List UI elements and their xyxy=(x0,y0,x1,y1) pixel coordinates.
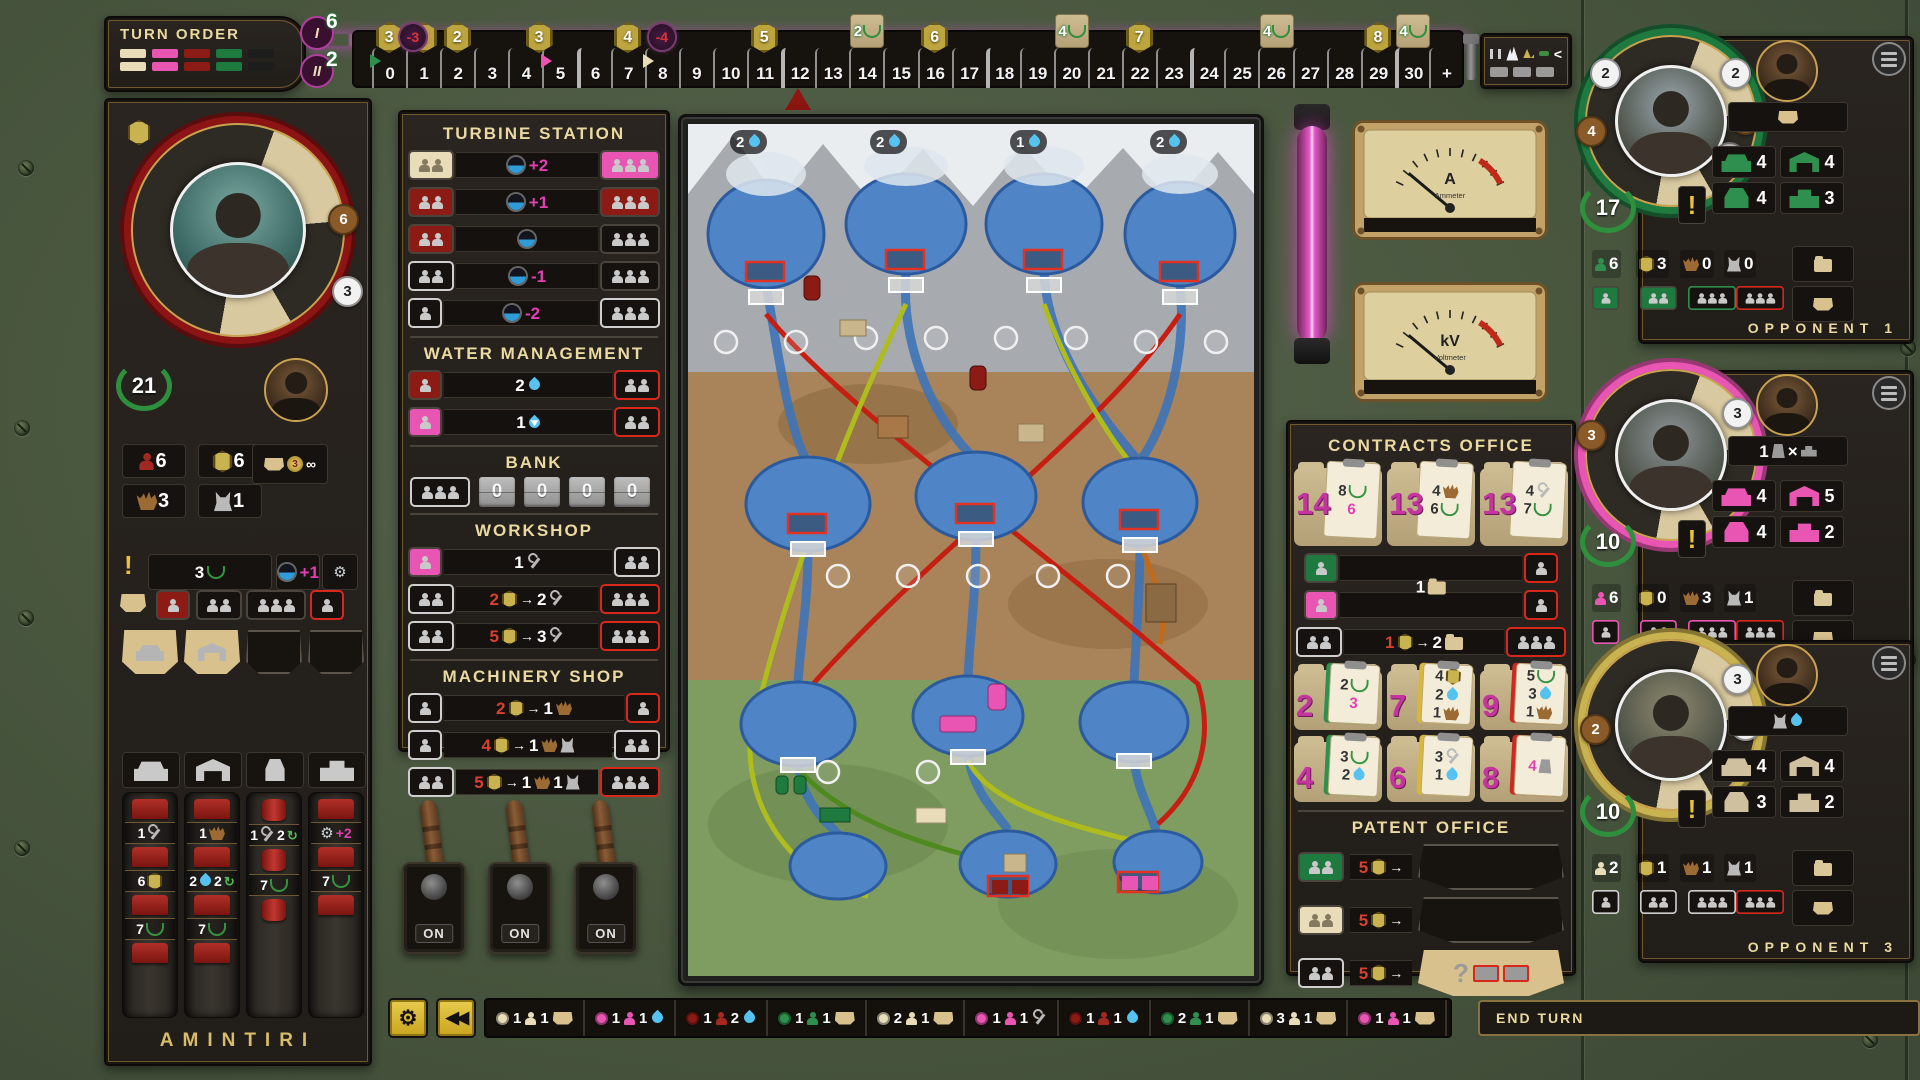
pick-slot[interactable] xyxy=(1304,553,1338,583)
laurel-icon xyxy=(1440,502,1459,516)
building-piece xyxy=(318,847,354,867)
track-cell-9[interactable]: 9 xyxy=(679,48,713,88)
meeple-icon xyxy=(1536,599,1547,612)
drop-icon xyxy=(1027,133,1043,149)
meeple-icon xyxy=(419,776,430,789)
track-cell-19[interactable]: 19 xyxy=(1020,48,1054,88)
switch-base: ON xyxy=(488,862,552,954)
value: 1 xyxy=(199,826,207,840)
turn-order-tokens xyxy=(120,49,304,71)
pick-slot[interactable] xyxy=(1524,590,1558,620)
building-count-conduit: 3 xyxy=(1712,786,1776,818)
action-slot[interactable] xyxy=(600,150,660,180)
patent-office-rows: 5→5→5→? xyxy=(1288,842,1574,998)
building-count-base: 4 xyxy=(1712,750,1776,782)
contract-card[interactable]: 9531 xyxy=(1480,662,1568,732)
player-construction-wheel[interactable]: 63 xyxy=(120,112,356,348)
meeple-cream-icon xyxy=(1595,862,1606,875)
track-cell-2[interactable]: 2 xyxy=(440,48,474,88)
value: 7 xyxy=(260,878,268,892)
action-slot[interactable] xyxy=(600,298,660,328)
bonus-value: 4 xyxy=(1058,23,1066,40)
bank-slot[interactable] xyxy=(410,477,470,507)
track-cell-30[interactable]: 30 xyxy=(1395,48,1429,88)
resource-value: 6 xyxy=(1609,254,1618,274)
track-cell-6[interactable]: 6 xyxy=(577,48,611,88)
mystery-building-icon xyxy=(1503,965,1529,982)
meeple-red-icon xyxy=(1098,1012,1109,1025)
opponent-worker-slot[interactable] xyxy=(1592,890,1619,914)
value: 1 xyxy=(1526,704,1535,719)
value: -1 xyxy=(531,268,546,285)
bonus-value: 2 xyxy=(854,23,862,40)
building-count-value: 4 xyxy=(1756,188,1766,209)
game-board: 0123456789101112131415161718192021222324… xyxy=(0,0,1920,1080)
meeple-icon xyxy=(1601,293,1610,303)
action-slot[interactable] xyxy=(600,621,660,651)
build-cost: 12↻ xyxy=(249,824,299,846)
track-cell-17[interactable]: 17 xyxy=(952,48,986,88)
track-cell-27[interactable]: 27 xyxy=(1293,48,1327,88)
track-cell-22[interactable]: 22 xyxy=(1122,48,1156,88)
settings-button[interactable]: ⚙ xyxy=(388,998,428,1038)
building-piece xyxy=(262,899,286,921)
contracts-stack-button[interactable] xyxy=(1792,246,1854,282)
player-worker-slot[interactable] xyxy=(156,590,190,620)
track-cell-1[interactable]: 1 xyxy=(406,48,440,88)
wrench-icon xyxy=(1536,483,1552,500)
powerhouse-icon xyxy=(320,759,354,781)
pick-slot[interactable] xyxy=(1304,590,1338,620)
meeple-icon xyxy=(625,196,636,209)
building-piece xyxy=(194,799,230,819)
laurel-icon xyxy=(1350,750,1369,764)
pick-slot[interactable] xyxy=(1524,553,1558,583)
contract-card[interactable]: 7421 xyxy=(1387,662,1475,732)
action-slot[interactable] xyxy=(408,547,442,577)
opponent-worker-slot[interactable] xyxy=(1592,286,1619,310)
meeple-icon xyxy=(220,599,231,612)
round-value: 2 xyxy=(326,48,338,72)
action-slot[interactable] xyxy=(408,370,442,400)
build-column-conduit[interactable]: 12↻7 xyxy=(246,792,302,1018)
meeple-icon xyxy=(1536,562,1547,575)
log-entry[interactable]: 11 xyxy=(1059,1000,1151,1036)
wheel-segment-elevation[interactable] xyxy=(184,630,240,674)
track-cell-7[interactable]: 7 xyxy=(611,48,645,88)
turn-order-title: TURN ORDER xyxy=(120,26,304,43)
contract-card[interactable]: 1346 xyxy=(1387,460,1475,548)
value: -2 xyxy=(525,305,540,322)
power-switch[interactable]: ON xyxy=(488,862,548,954)
player-dot-icon xyxy=(877,1012,890,1025)
meeple-icon xyxy=(1307,636,1318,649)
track-cell-18[interactable]: 18 xyxy=(986,48,1020,88)
player-panel: 63 21 6631 3 ∞ ! 3 +1⚙ 167122↻712↻7⚙+27 … xyxy=(104,98,372,1066)
contract-card[interactable]: 1486 xyxy=(1294,460,1382,548)
powerhouse-icon xyxy=(1789,522,1819,542)
action-slot[interactable] xyxy=(1506,627,1566,657)
value: 1 xyxy=(553,774,562,791)
building-count-value: 2 xyxy=(1824,792,1834,813)
meeple-icon xyxy=(168,599,179,612)
hex-icon xyxy=(147,873,162,890)
action-row: -1 xyxy=(408,259,660,293)
meeple-cream-icon xyxy=(906,1012,917,1025)
resource-mixer: 0 xyxy=(1724,250,1756,278)
build-column-base[interactable]: 167 xyxy=(122,792,178,1018)
track-cell-20[interactable]: 20 xyxy=(1054,48,1088,88)
value: 3 xyxy=(1434,749,1443,764)
building-piece xyxy=(132,847,168,867)
meeple-icon xyxy=(1659,897,1668,907)
log-entry[interactable]: 21 xyxy=(867,1000,966,1036)
action-slot[interactable] xyxy=(600,767,660,797)
log-entry[interactable]: 12 xyxy=(676,1000,768,1036)
wheel-segment-conduit[interactable] xyxy=(246,630,302,674)
build-cost: 1 xyxy=(187,822,237,844)
advisor-portrait[interactable] xyxy=(1756,644,1818,706)
action-slot[interactable] xyxy=(408,407,442,437)
contract-card[interactable]: 1347 xyxy=(1480,460,1568,548)
round-marker: I6 xyxy=(300,14,352,50)
meeple-icon xyxy=(612,270,623,283)
conduit-icon xyxy=(263,759,287,781)
stack-bar-icon xyxy=(1881,398,1897,401)
income-medal-icon: 3 xyxy=(287,456,303,472)
action-cost: 1→2 xyxy=(1344,629,1504,655)
plasma-tube xyxy=(1294,104,1330,364)
contract-rewards: 46 xyxy=(1416,461,1474,540)
contract-pick-rows: 1 xyxy=(1296,551,1566,622)
track-cell-24[interactable]: 24 xyxy=(1190,48,1224,88)
wheel-segment-powerhouse[interactable] xyxy=(308,630,364,674)
value: 5 xyxy=(474,774,483,791)
svg-text:kV: kV xyxy=(1440,333,1460,350)
advisor-portrait[interactable] xyxy=(1756,374,1818,436)
building-piece xyxy=(132,799,168,819)
objective-alert-button[interactable]: ! xyxy=(1678,790,1706,828)
turbine-icon xyxy=(519,231,535,247)
action-slot[interactable] xyxy=(408,187,454,217)
wheel-segment-base[interactable] xyxy=(122,630,178,674)
contracts-stack-button[interactable] xyxy=(1792,580,1854,616)
turbine-icon xyxy=(508,194,524,210)
action-slot[interactable] xyxy=(408,621,454,651)
value: 2 xyxy=(1340,677,1349,692)
action-row: 2 xyxy=(408,368,660,402)
conduit-icon xyxy=(1721,792,1751,812)
energy-track[interactable]: 0123456789101112131415161718192021222324… xyxy=(372,48,1463,88)
turn-order-token-green[interactable] xyxy=(216,49,242,71)
patent-segment-empty[interactable] xyxy=(1418,897,1564,943)
contract-card[interactable]: 432 xyxy=(1294,734,1382,804)
track-cell-28[interactable]: 28 xyxy=(1327,48,1361,88)
advisor-portrait[interactable] xyxy=(264,358,328,422)
contract-rewards: 531 xyxy=(1513,663,1566,726)
opponent-worker-slot[interactable] xyxy=(1640,890,1677,914)
contract-energy-value: 2 xyxy=(1296,688,1313,724)
action-slot[interactable] xyxy=(626,693,660,723)
patent-segment-mystery[interactable]: ? xyxy=(1418,950,1564,996)
excavator-icon xyxy=(1683,591,1699,605)
value: 1 xyxy=(1086,1011,1094,1026)
action-row: 2→1 xyxy=(408,691,660,725)
value: 2 xyxy=(537,591,546,608)
track-lever-icon[interactable] xyxy=(1466,40,1476,80)
opponent-worker-slot[interactable] xyxy=(1640,286,1677,310)
building-count-base: 4 xyxy=(1712,146,1776,178)
action-slot[interactable] xyxy=(408,767,454,797)
bonus-value: 4 xyxy=(1399,23,1407,40)
opponent-panel-1: 242214443!176300OPPONENT 1 xyxy=(1560,18,1920,348)
reward-line: 6 xyxy=(1430,501,1459,517)
workshop-title: WORKSHOP xyxy=(400,521,668,541)
player-dot-icon xyxy=(1161,1012,1174,1025)
log-entry[interactable]: 11 xyxy=(965,1000,1059,1036)
track-cell-10[interactable]: 10 xyxy=(713,48,747,88)
mixer-icon xyxy=(1773,714,1787,729)
meeple-icon xyxy=(258,599,269,612)
dropdown-icon xyxy=(526,414,542,430)
pick-label: 1 xyxy=(1416,578,1446,595)
bank-title: BANK xyxy=(400,453,668,473)
track-cell-4[interactable]: 4 xyxy=(508,48,542,88)
value: 1 xyxy=(1375,1011,1383,1026)
game-map[interactable]: 2212 xyxy=(678,114,1264,986)
opponent-worker-slot[interactable] xyxy=(1688,890,1736,914)
power-switch[interactable]: ON xyxy=(402,862,462,954)
meeple-icon xyxy=(625,739,636,752)
opponent-worker-slot[interactable] xyxy=(1688,286,1736,310)
patent-segment-empty[interactable] xyxy=(1418,844,1564,890)
excavator-icon xyxy=(209,826,225,840)
meeple-pink-icon xyxy=(1005,1012,1016,1025)
value: 1 xyxy=(1385,634,1394,651)
action-slot[interactable] xyxy=(614,730,660,760)
building-count-base: 4 xyxy=(1712,480,1776,512)
action-slot[interactable] xyxy=(600,584,660,614)
action-log[interactable]: 11111211211111213111 xyxy=(484,998,1452,1038)
track-cell-15[interactable]: 15 xyxy=(883,48,917,88)
meeple-icon xyxy=(1309,967,1320,980)
stack-bar-icon xyxy=(1881,668,1897,671)
turbine-icon xyxy=(508,157,524,173)
clipboard-clip-icon xyxy=(1344,660,1366,669)
opponent-cards-toggle[interactable] xyxy=(1872,646,1906,680)
contract-card[interactable]: 631 xyxy=(1387,734,1475,804)
turn-order-token-black[interactable] xyxy=(248,49,274,71)
bank-counter: 0 xyxy=(569,477,605,507)
player-dot-icon xyxy=(778,1012,791,1025)
contract-energy-value: 9 xyxy=(1482,688,1499,724)
resource-credits: 3 xyxy=(1636,250,1669,278)
player-worker-slot[interactable] xyxy=(246,590,306,620)
objective-bar[interactable]: 3 xyxy=(148,554,272,590)
build-column-elevation[interactable]: 122↻7 xyxy=(184,792,240,1018)
stack-bar-icon xyxy=(1881,662,1897,665)
hex-icon xyxy=(1371,965,1386,982)
value: 3 xyxy=(1528,686,1537,701)
meeple-icon xyxy=(1708,897,1717,907)
action-slot[interactable] xyxy=(408,261,454,291)
action-slot[interactable] xyxy=(600,224,660,254)
divider xyxy=(410,659,658,661)
turn-order-token-cream[interactable] xyxy=(120,49,146,71)
opponent-cards-toggle[interactable] xyxy=(1872,42,1906,76)
infinity-icon: ∞ xyxy=(306,457,316,471)
wheel-badge: 6 xyxy=(328,204,359,235)
powerhouse-icon xyxy=(1789,792,1819,812)
undo-button[interactable]: ◀◀ xyxy=(436,998,476,1038)
track-cell-16[interactable]: 16 xyxy=(918,48,952,88)
turn-order-token-pink[interactable] xyxy=(152,49,178,71)
reward-line: 6 xyxy=(1347,501,1356,516)
track-cell-13[interactable]: 13 xyxy=(815,48,849,88)
excavator-icon xyxy=(1683,257,1699,271)
bonus-chip[interactable]: +1 xyxy=(276,554,320,590)
player-worker-slot[interactable] xyxy=(196,590,242,620)
contracts-stack-button[interactable] xyxy=(1792,850,1854,886)
track-cell-21[interactable]: 21 xyxy=(1088,48,1122,88)
advisor-portrait[interactable] xyxy=(1756,40,1818,102)
action-slot[interactable] xyxy=(408,298,442,328)
wheel-badge: 3 xyxy=(1576,420,1607,451)
hex-icon xyxy=(509,700,524,717)
divider xyxy=(1298,810,1564,812)
wheel-badge: 2 xyxy=(1720,58,1751,89)
value: 1 xyxy=(921,1011,929,1026)
machinery-shop-title: MACHINERY SHOP xyxy=(400,667,668,687)
contract-market-row: 43263184 xyxy=(1292,734,1570,804)
divider xyxy=(410,445,658,447)
track-cell-29[interactable]: 29 xyxy=(1361,48,1395,88)
switch-base: ON xyxy=(574,862,638,954)
end-turn-button[interactable]: END TURN xyxy=(1478,1000,1920,1036)
action-slot[interactable] xyxy=(408,584,454,614)
meeple-icon xyxy=(638,630,649,643)
segment-icon xyxy=(1813,902,1833,915)
turn-order-token-darkred[interactable] xyxy=(184,49,210,71)
value: 1 xyxy=(1759,443,1768,460)
excavator-icon xyxy=(1536,705,1553,720)
value: 7 xyxy=(136,922,144,936)
wheel-badge: 3 xyxy=(1722,398,1753,429)
track-cell-14[interactable]: 14 xyxy=(849,48,883,88)
log-entry[interactable]: 11 xyxy=(585,1000,677,1036)
action-slot[interactable] xyxy=(408,150,454,180)
bonus-chip[interactable]: ⚙ xyxy=(322,554,358,590)
patent-cost: 5→ xyxy=(1350,960,1412,986)
divider xyxy=(410,513,658,515)
log-entry[interactable]: 11 xyxy=(486,1000,585,1036)
patent-slot[interactable] xyxy=(1298,958,1344,988)
action-slot[interactable] xyxy=(614,547,660,577)
opponent-cards-toggle[interactable] xyxy=(1872,376,1906,410)
track-cell-3[interactable]: 3 xyxy=(474,48,508,88)
segments-stack-button[interactable] xyxy=(1792,286,1854,322)
opponent-worker-slot[interactable] xyxy=(1736,890,1784,914)
meeple-icon xyxy=(1322,914,1333,927)
track-cell-11[interactable]: 11 xyxy=(747,48,781,88)
wheel-segment-icon xyxy=(120,594,146,612)
drop-icon xyxy=(742,1009,758,1025)
folder-icon xyxy=(1814,593,1832,606)
meeple-icon xyxy=(435,486,446,499)
patent-slot[interactable] xyxy=(1298,905,1344,935)
objective-alert-button[interactable]: ! xyxy=(1678,186,1706,224)
contract-card[interactable]: 84 xyxy=(1480,734,1568,804)
track-cell-26[interactable]: 26 xyxy=(1258,48,1292,88)
reward-line: 1 xyxy=(1432,705,1459,721)
opponent-worker-slot[interactable] xyxy=(1736,286,1784,310)
track-cell-23[interactable]: 23 xyxy=(1156,48,1190,88)
action-slot[interactable] xyxy=(600,187,660,217)
credits-hex-icon[interactable] xyxy=(128,120,150,145)
wrench-icon xyxy=(549,591,564,607)
track-cell-12[interactable]: 12 xyxy=(781,48,815,88)
resource-value: 6 xyxy=(233,450,244,473)
action-slot[interactable] xyxy=(408,224,454,254)
power-switch[interactable]: ON xyxy=(574,862,634,954)
log-entry[interactable]: 21 xyxy=(1151,1000,1250,1036)
log-entry[interactable]: 31 xyxy=(1250,1000,1349,1036)
powerhouse-icon xyxy=(1789,188,1819,208)
meeple-icon xyxy=(1697,293,1706,303)
reward-line: 5 xyxy=(1526,668,1555,684)
meeple-icon xyxy=(422,486,433,499)
meeple-icon xyxy=(419,196,430,209)
meeple-icon xyxy=(1766,897,1775,907)
log-entry[interactable]: 11 xyxy=(1348,1000,1447,1036)
meeple-red-icon xyxy=(716,1012,727,1025)
value: +1 xyxy=(300,564,319,581)
water-management-rows: 21 xyxy=(400,368,668,439)
resource-engineer: 2 xyxy=(1592,854,1621,882)
vp-value: 10 xyxy=(1596,799,1620,825)
contract-market-row: 22374219531 xyxy=(1292,662,1570,732)
laurel-icon xyxy=(1272,25,1290,38)
building-count-elevation: 5 xyxy=(1780,480,1844,512)
switch-label: ON xyxy=(587,924,625,943)
player-worker-slot[interactable] xyxy=(310,590,344,620)
laurel-icon xyxy=(146,923,164,936)
meeple-icon xyxy=(638,196,649,209)
action-slot[interactable] xyxy=(600,261,660,291)
building-count-value: 4 xyxy=(1756,486,1766,507)
value: 4 xyxy=(1525,483,1534,498)
player-track-marker xyxy=(785,88,811,110)
action-slot[interactable] xyxy=(614,407,660,437)
patent-slot[interactable] xyxy=(1298,852,1344,882)
contract-card[interactable]: 223 xyxy=(1294,662,1382,732)
action-row: 2→2 xyxy=(408,582,660,616)
objective-alert-button[interactable]: ! xyxy=(1678,520,1706,558)
value: 2 xyxy=(277,828,285,842)
resource-excavator: 1 xyxy=(1680,854,1714,882)
action-slot[interactable] xyxy=(408,730,442,760)
action-slot[interactable] xyxy=(614,370,660,400)
wrench-icon xyxy=(260,827,275,843)
action-slot[interactable] xyxy=(1296,627,1342,657)
log-entry[interactable]: 11 xyxy=(768,1000,867,1036)
track-cell-+[interactable]: + xyxy=(1429,48,1463,88)
dam-block-icon xyxy=(1513,67,1531,77)
segments-stack-button[interactable] xyxy=(1792,890,1854,926)
build-column-powerhouse[interactable]: ⚙+27 xyxy=(308,792,364,1018)
track-cell-25[interactable]: 25 xyxy=(1224,48,1258,88)
action-slot[interactable] xyxy=(408,693,442,723)
